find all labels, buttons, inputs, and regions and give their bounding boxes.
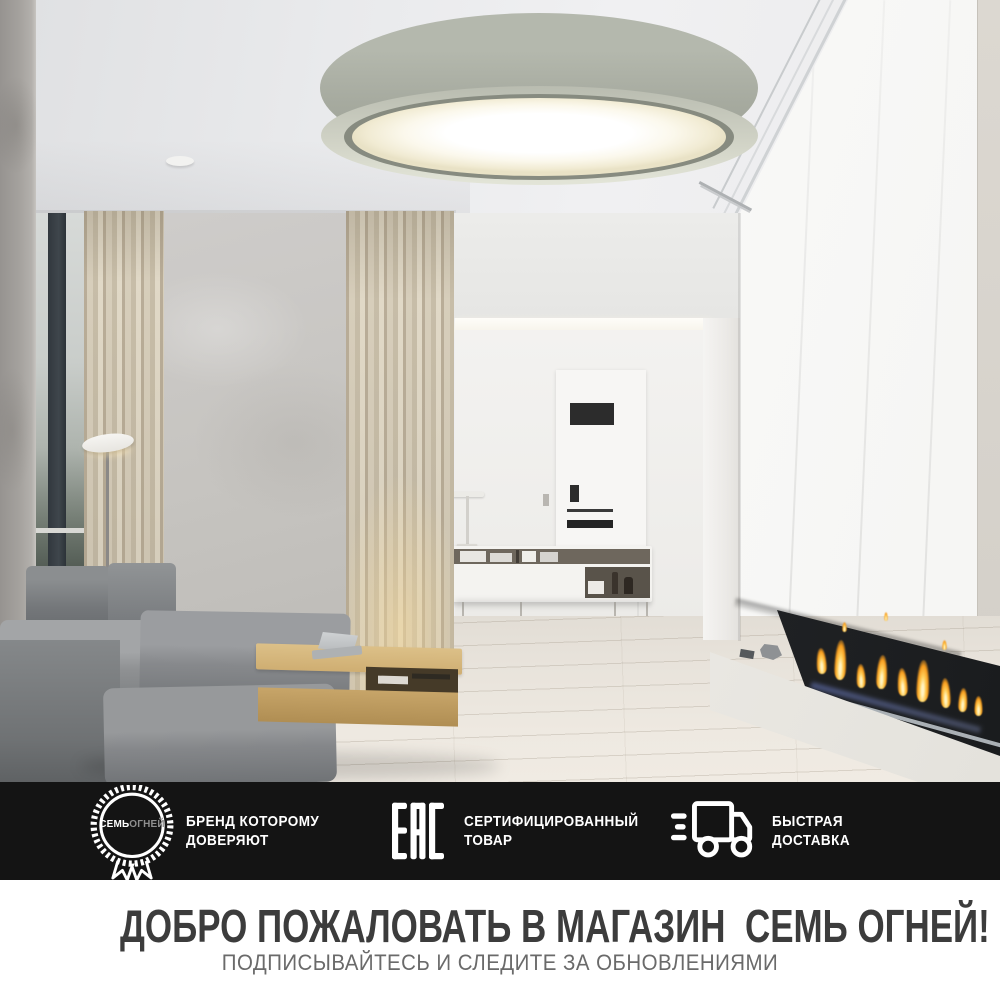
- hero-photo: [0, 0, 1000, 782]
- flame: [896, 668, 908, 697]
- welcome-subtitle: ПОДПИСЫВАЙТЕСЬ И СЛЕДИТЕ ЗА ОБНОВЛЕНИЯМИ: [35, 950, 965, 976]
- badge-brand-text: БРЕНД КОТОРОМУ ДОВЕРЯЮТ: [186, 782, 319, 880]
- badge-delivery-text: БЫСТРАЯ ДОСТАВКА: [772, 782, 850, 880]
- badge-line: ДОВЕРЯЮТ: [186, 831, 319, 850]
- badge-strip: СЕМЬОГНЕЙ БРЕНД КОТОРОМУ ДОВЕРЯЮТ СЕРТИФ…: [0, 782, 1000, 880]
- welcome-title: ДОБРО ПОЖАЛОВАТЬ В МАГАЗИН СЕМЬ ОГНЕЙ!: [120, 904, 880, 948]
- badge-line: ДОСТАВКА: [772, 831, 850, 850]
- footer-banner: ДОБРО ПОЖАЛОВАТЬ В МАГАЗИН СЕМЬ ОГНЕЙ! П…: [0, 880, 1000, 1000]
- badge-certified-text: СЕРТИФИЦИРОВАННЫЙ ТОВАР: [464, 782, 639, 880]
- seal-text-light: ОГНЕЙ: [129, 819, 165, 830]
- flame-spark: [884, 612, 888, 621]
- flame: [957, 688, 968, 712]
- badge-line: БРЕНД КОТОРОМУ: [186, 812, 319, 831]
- seal-text-bold: СЕМЬ: [99, 819, 129, 830]
- marketplace-product-image: СЕМЬОГНЕЙ БРЕНД КОТОРОМУ ДОВЕРЯЮТ СЕРТИФ…: [0, 0, 1000, 1000]
- badge-line: БЫСТРАЯ: [772, 812, 850, 831]
- flame: [875, 655, 889, 690]
- flame: [939, 678, 951, 708]
- flame: [856, 664, 867, 688]
- flame: [915, 660, 930, 702]
- seal-text: СЕМЬОГНЕЙ: [86, 819, 178, 830]
- badge-line: СЕРТИФИЦИРОВАННЫЙ: [464, 812, 639, 831]
- flame-spark: [842, 622, 847, 632]
- delivery-truck-icon: [670, 798, 760, 862]
- flame: [815, 648, 827, 675]
- flame: [974, 696, 983, 716]
- flame: [833, 640, 847, 680]
- ceiling-lamp-diffuser: [352, 98, 726, 176]
- eac-certification-mark-icon: [392, 799, 444, 863]
- brand-seal-medal-icon: СЕМЬОГНЕЙ: [86, 785, 178, 881]
- flame-spark: [942, 640, 947, 650]
- badge-line: ТОВАР: [464, 831, 639, 850]
